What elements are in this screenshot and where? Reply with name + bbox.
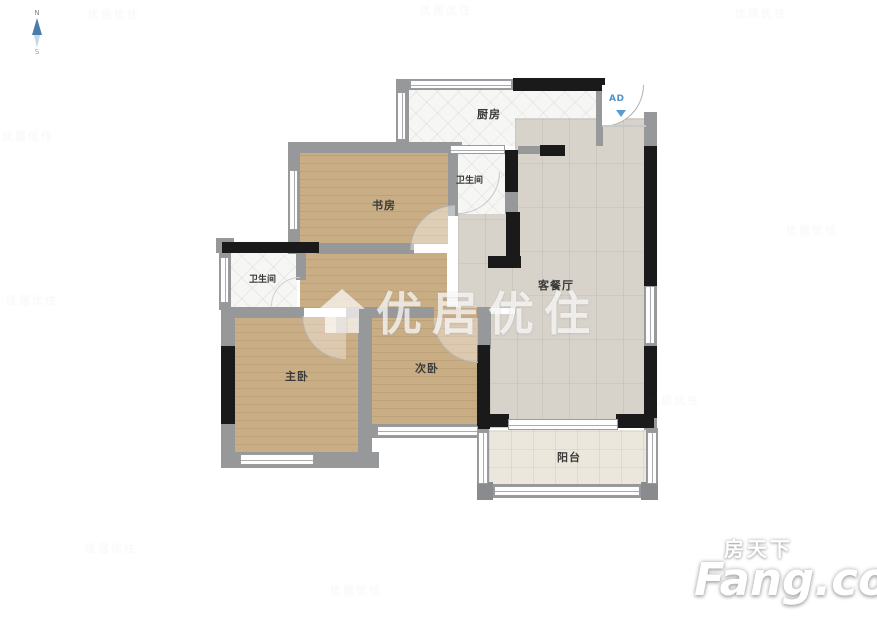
window-balcony-bottom — [494, 486, 640, 496]
compass-needle-tail-icon — [34, 35, 40, 48]
wall-balcony-corner-bl — [477, 482, 493, 500]
master-bedroom-label: 主卧 — [285, 368, 309, 384]
shear-wall-second-right — [477, 345, 490, 429]
window-study-left — [289, 170, 298, 230]
brand-watermark: 房天下 Fang.com — [694, 533, 877, 602]
shear-wall-hall-vertical — [506, 212, 520, 262]
window-living-right — [645, 286, 655, 344]
window-bath-left — [220, 257, 229, 303]
shear-wall-living-bottom-right — [616, 414, 654, 428]
corridor-floor — [300, 253, 447, 308]
living-dining-label: 客餐厅 — [538, 277, 574, 293]
wall-second-top — [372, 307, 434, 318]
shear-wall-master-left — [221, 346, 235, 424]
tile-watermark: 优居优住 — [786, 222, 838, 238]
kitchen-label: 厨房 — [477, 106, 501, 122]
shear-wall-hall-foot — [488, 256, 521, 268]
floorplan-canvas: 厨房 卫生间 书房 客餐厅 卫生间 主卧 次卧 阳台 N S AD 优居优住 房… — [0, 0, 877, 620]
brand-watermark-cn: 房天下 — [724, 533, 877, 562]
window-bath-top — [450, 145, 505, 154]
tile-watermark: 优居优住 — [420, 2, 472, 18]
tile-watermark: 优居优住 — [2, 128, 54, 144]
bathroom-top-label: 卫生间 — [456, 173, 483, 186]
window-second-bottom — [377, 426, 478, 436]
window-living-balcony — [508, 419, 618, 430]
window-kitchen-left — [397, 92, 406, 140]
living-floor-strip — [490, 314, 520, 428]
second-bedroom-label: 次卧 — [415, 360, 439, 376]
tile-watermark: 优居优住 — [330, 582, 382, 598]
tile-watermark: 优居优住 — [85, 540, 137, 556]
wall-bath-top-right-lower — [505, 190, 518, 214]
compass-needle-icon — [32, 18, 42, 35]
wall-study-top — [289, 142, 462, 153]
window-kitchen-top — [410, 80, 512, 89]
window-balcony-left — [478, 432, 488, 484]
shear-wall-kitchen-nib — [540, 145, 565, 156]
window-master-bottom — [240, 454, 314, 465]
tile-watermark: 优居优住 — [735, 5, 787, 21]
brand-watermark-en: Fang.com — [694, 558, 877, 602]
compass: N S — [26, 9, 48, 59]
entry-direction-arrow-icon — [616, 110, 626, 117]
living-floor-main — [515, 118, 645, 428]
shear-wall-right-upper — [644, 146, 657, 286]
bathroom-left-label: 卫生间 — [249, 272, 276, 285]
shear-wall-bath-left-top — [222, 242, 319, 253]
shear-wall-right-lower — [644, 346, 657, 418]
study-label: 书房 — [372, 197, 396, 213]
wall-bath-left-right — [296, 252, 306, 280]
tile-watermark: 优居优住 — [6, 292, 58, 308]
wall-kitchen-bottom-nib — [518, 146, 542, 154]
compass-south-label: S — [26, 48, 48, 56]
wall-bedroom-divider — [358, 307, 372, 456]
wall-study-bottom — [316, 243, 414, 254]
tile-watermark: 优居优住 — [88, 6, 140, 22]
shear-wall-bath-top-right — [505, 150, 518, 192]
window-balcony-right — [647, 432, 657, 484]
wall-balcony-corner-br — [641, 482, 658, 500]
shear-wall-kitchen-top — [513, 78, 605, 91]
balcony-label: 阳台 — [557, 449, 581, 465]
entry-threshold — [602, 125, 646, 127]
compass-north-label: N — [26, 9, 48, 17]
entry-ad-label: AD — [609, 94, 624, 104]
wall-second-right-upper — [477, 307, 491, 349]
